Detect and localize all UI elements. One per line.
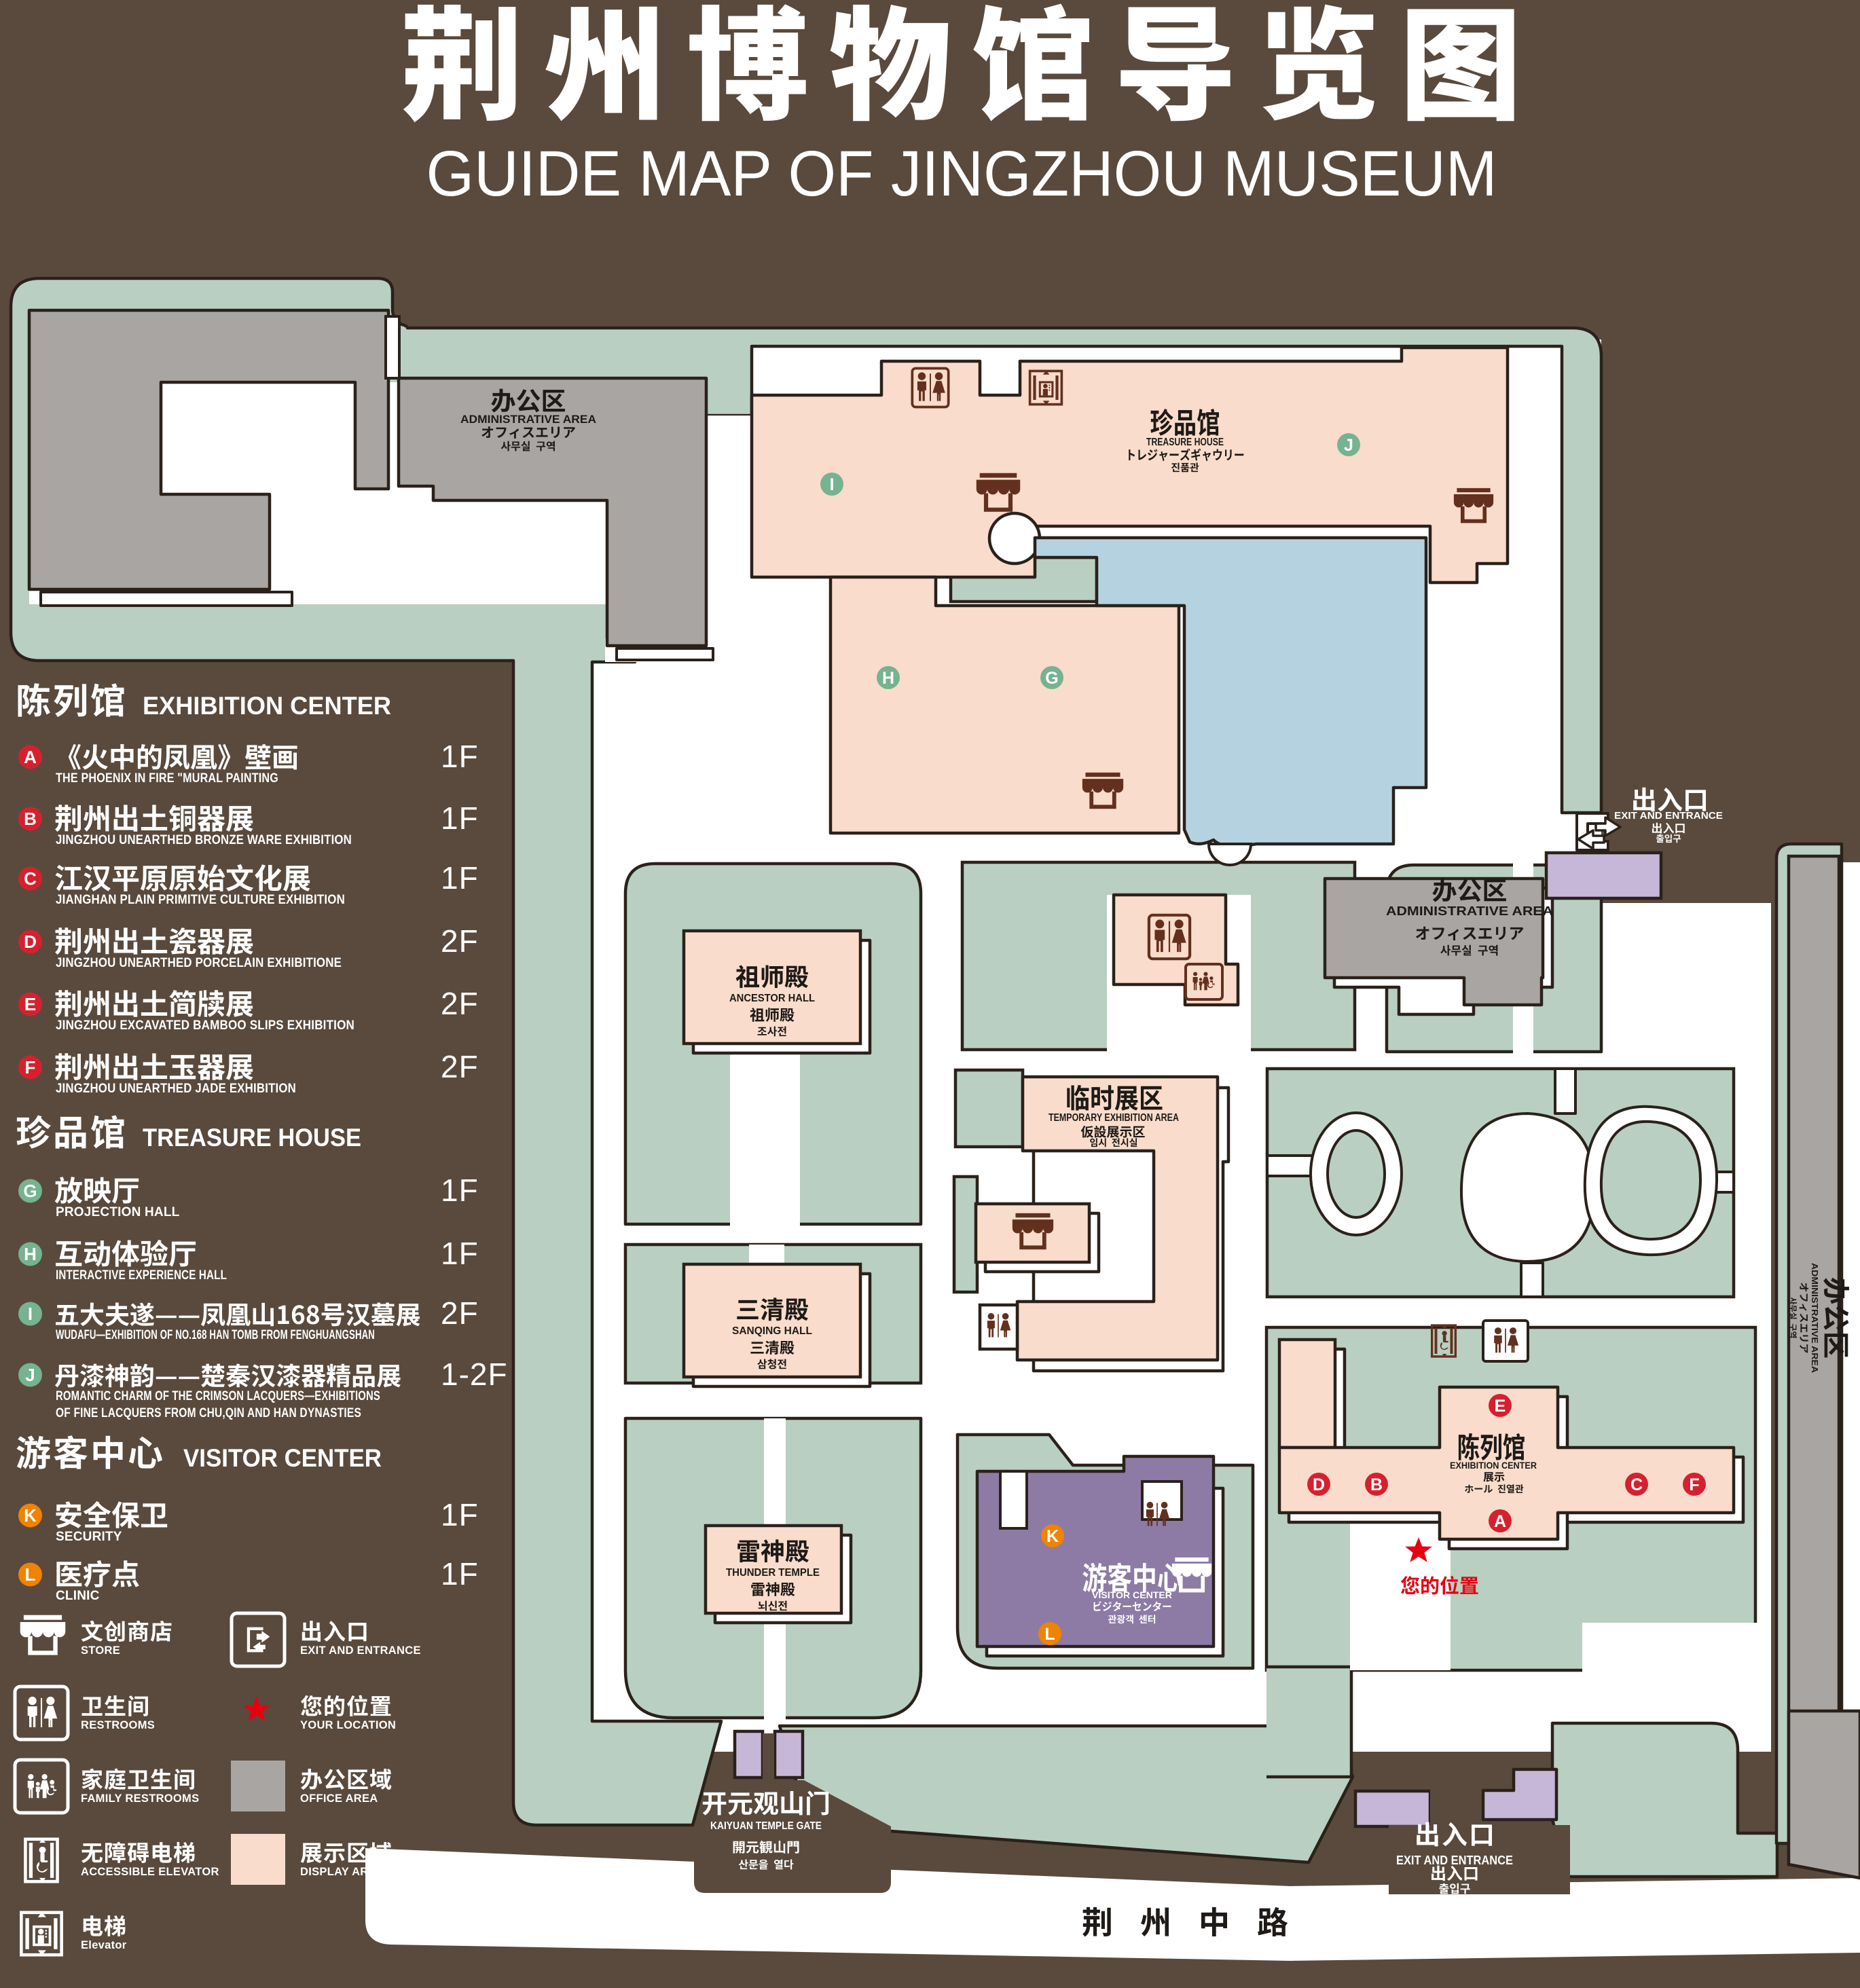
svg-text:ANCESTOR HALL: ANCESTOR HALL (729, 993, 815, 1004)
svg-text:SANQING HALL: SANQING HALL (732, 1325, 812, 1337)
svg-text:B: B (24, 809, 37, 829)
svg-text:KAIYUAN TEMPLE GATE: KAIYUAN TEMPLE GATE (710, 1820, 822, 1832)
svg-text:1F: 1F (441, 1556, 479, 1591)
svg-text:TREASURE HOUSE: TREASURE HOUSE (143, 1124, 361, 1152)
svg-text:JIANGHAN PLAIN PRIMITIVE CULTU: JIANGHAN PLAIN PRIMITIVE CULTURE EXHIBIT… (56, 893, 345, 907)
svg-text:ADMINISTRATIVE AREA: ADMINISTRATIVE AREA (1386, 904, 1553, 918)
svg-text:GUIDE MAP OF JINGZHOU MUSEUM: GUIDE MAP OF JINGZHOU MUSEUM (426, 138, 1497, 210)
svg-text:2F: 2F (441, 1049, 479, 1084)
svg-text:1-2F: 1-2F (441, 1357, 508, 1392)
svg-text:G: G (1045, 669, 1058, 688)
svg-text:I: I (28, 1304, 33, 1324)
svg-text:J: J (25, 1365, 35, 1385)
svg-text:A: A (1494, 1512, 1506, 1531)
svg-text:I: I (830, 475, 835, 494)
svg-text:JINGZHOU UNEARTHED PORCELAIN E: JINGZHOU UNEARTHED PORCELAIN EXHIBITIONE (56, 956, 342, 970)
svg-text:JINGZHOU EXCAVATED BAMBOO SLIP: JINGZHOU EXCAVATED BAMBOO SLIPS EXHIBITI… (56, 1018, 354, 1033)
svg-text:K: K (1046, 1527, 1059, 1546)
svg-text:ADMINISTRATIVE AREA: ADMINISTRATIVE AREA (460, 413, 596, 426)
svg-text:L: L (25, 1564, 36, 1585)
svg-text:1F: 1F (441, 739, 479, 774)
svg-text:WUDAFU—EXHIBITION OF NO.168 HA: WUDAFU—EXHIBITION OF NO.168 HAN TOMB FRO… (56, 1328, 375, 1342)
svg-text:YOUR LOCATION: YOUR LOCATION (300, 1719, 396, 1731)
svg-text:EXHIBITION CENTER: EXHIBITION CENTER (1450, 1460, 1537, 1471)
svg-text:VISITOR CENTER: VISITOR CENTER (183, 1444, 382, 1472)
svg-text:A: A (24, 747, 37, 767)
svg-text:ADMINISTRATIVE AREA: ADMINISTRATIVE AREA (1810, 1263, 1820, 1374)
svg-text:C: C (1630, 1475, 1643, 1494)
svg-text:ROMANTIC CHARM OF THE CRIMSON: ROMANTIC CHARM OF THE CRIMSON LACQUERS—E… (56, 1389, 380, 1403)
svg-text:1F: 1F (441, 1173, 479, 1208)
svg-text:C: C (24, 868, 37, 889)
svg-text:K: K (24, 1505, 37, 1526)
svg-text:DISPLAY AREA: DISPLAY AREA (300, 1866, 384, 1878)
svg-text:F: F (1689, 1475, 1699, 1494)
svg-text:E: E (24, 994, 36, 1014)
svg-text:THUNDER TEMPLE: THUNDER TEMPLE (726, 1567, 820, 1579)
svg-text:SECURITY: SECURITY (56, 1530, 122, 1544)
svg-text:1F: 1F (441, 860, 479, 896)
svg-text:2F: 2F (441, 923, 479, 959)
svg-text:H: H (24, 1244, 37, 1264)
svg-text:D: D (1313, 1475, 1325, 1494)
svg-text:G: G (23, 1181, 37, 1201)
svg-text:PROJECTION HALL: PROJECTION HALL (56, 1205, 180, 1219)
svg-text:RESTROOMS: RESTROOMS (81, 1719, 155, 1731)
svg-text:CLINIC: CLINIC (56, 1589, 100, 1603)
svg-text:ACCESSIBLE ELEVATOR: ACCESSIBLE ELEVATOR (81, 1866, 219, 1878)
svg-text:2F: 2F (441, 986, 479, 1021)
svg-text:THE PHOENIX IN FIRE "MURAL PAI: THE PHOENIX IN FIRE "MURAL PAINTING (56, 771, 278, 786)
svg-text:TEMPORARY EXHIBITION AREA: TEMPORARY EXHIBITION AREA (1048, 1112, 1179, 1124)
svg-text:1F: 1F (441, 800, 479, 836)
svg-text:OFFICE AREA: OFFICE AREA (300, 1792, 378, 1805)
svg-text:FAMILY RESTROOMS: FAMILY RESTROOMS (81, 1792, 199, 1805)
svg-text:VISITOR CENTER: VISITOR CENTER (1092, 1590, 1172, 1600)
svg-text:2F: 2F (441, 1295, 479, 1331)
svg-text:H: H (882, 669, 894, 688)
svg-text:J: J (1344, 436, 1353, 455)
svg-text:EXIT AND ENTRANCE: EXIT AND ENTRANCE (300, 1644, 421, 1657)
svg-text:E: E (1495, 1397, 1506, 1416)
svg-text:OF FINE LACQUERS FROM CHU,QIN: OF FINE LACQUERS FROM CHU,QIN AND HAN DY… (56, 1406, 361, 1420)
svg-text:1F: 1F (441, 1497, 479, 1532)
svg-text:F: F (25, 1057, 36, 1078)
svg-text:JINGZHOU UNEARTHED JADE EXHIBI: JINGZHOU UNEARTHED JADE EXHIBITION (56, 1082, 296, 1096)
svg-text:INTERACTIVE EXPERIENCE HALL: INTERACTIVE EXPERIENCE HALL (56, 1268, 227, 1283)
svg-text:1F: 1F (441, 1236, 479, 1271)
svg-text:EXIT AND ENTRANCE: EXIT AND ENTRANCE (1614, 811, 1723, 822)
svg-text:STORE: STORE (81, 1644, 120, 1657)
svg-text:EXHIBITION CENTER: EXHIBITION CENTER (143, 692, 391, 720)
svg-text:D: D (24, 932, 37, 952)
svg-text:L: L (1044, 1625, 1055, 1644)
svg-text:EXIT AND ENTRANCE: EXIT AND ENTRANCE (1396, 1854, 1513, 1867)
svg-text:Elevator: Elevator (81, 1939, 127, 1951)
svg-text:TREASURE HOUSE: TREASURE HOUSE (1146, 437, 1224, 448)
svg-text:JINGZHOU UNEARTHED BRONZE WARE: JINGZHOU UNEARTHED BRONZE WARE EXHIBITIO… (56, 833, 352, 847)
svg-text:B: B (1370, 1475, 1383, 1494)
